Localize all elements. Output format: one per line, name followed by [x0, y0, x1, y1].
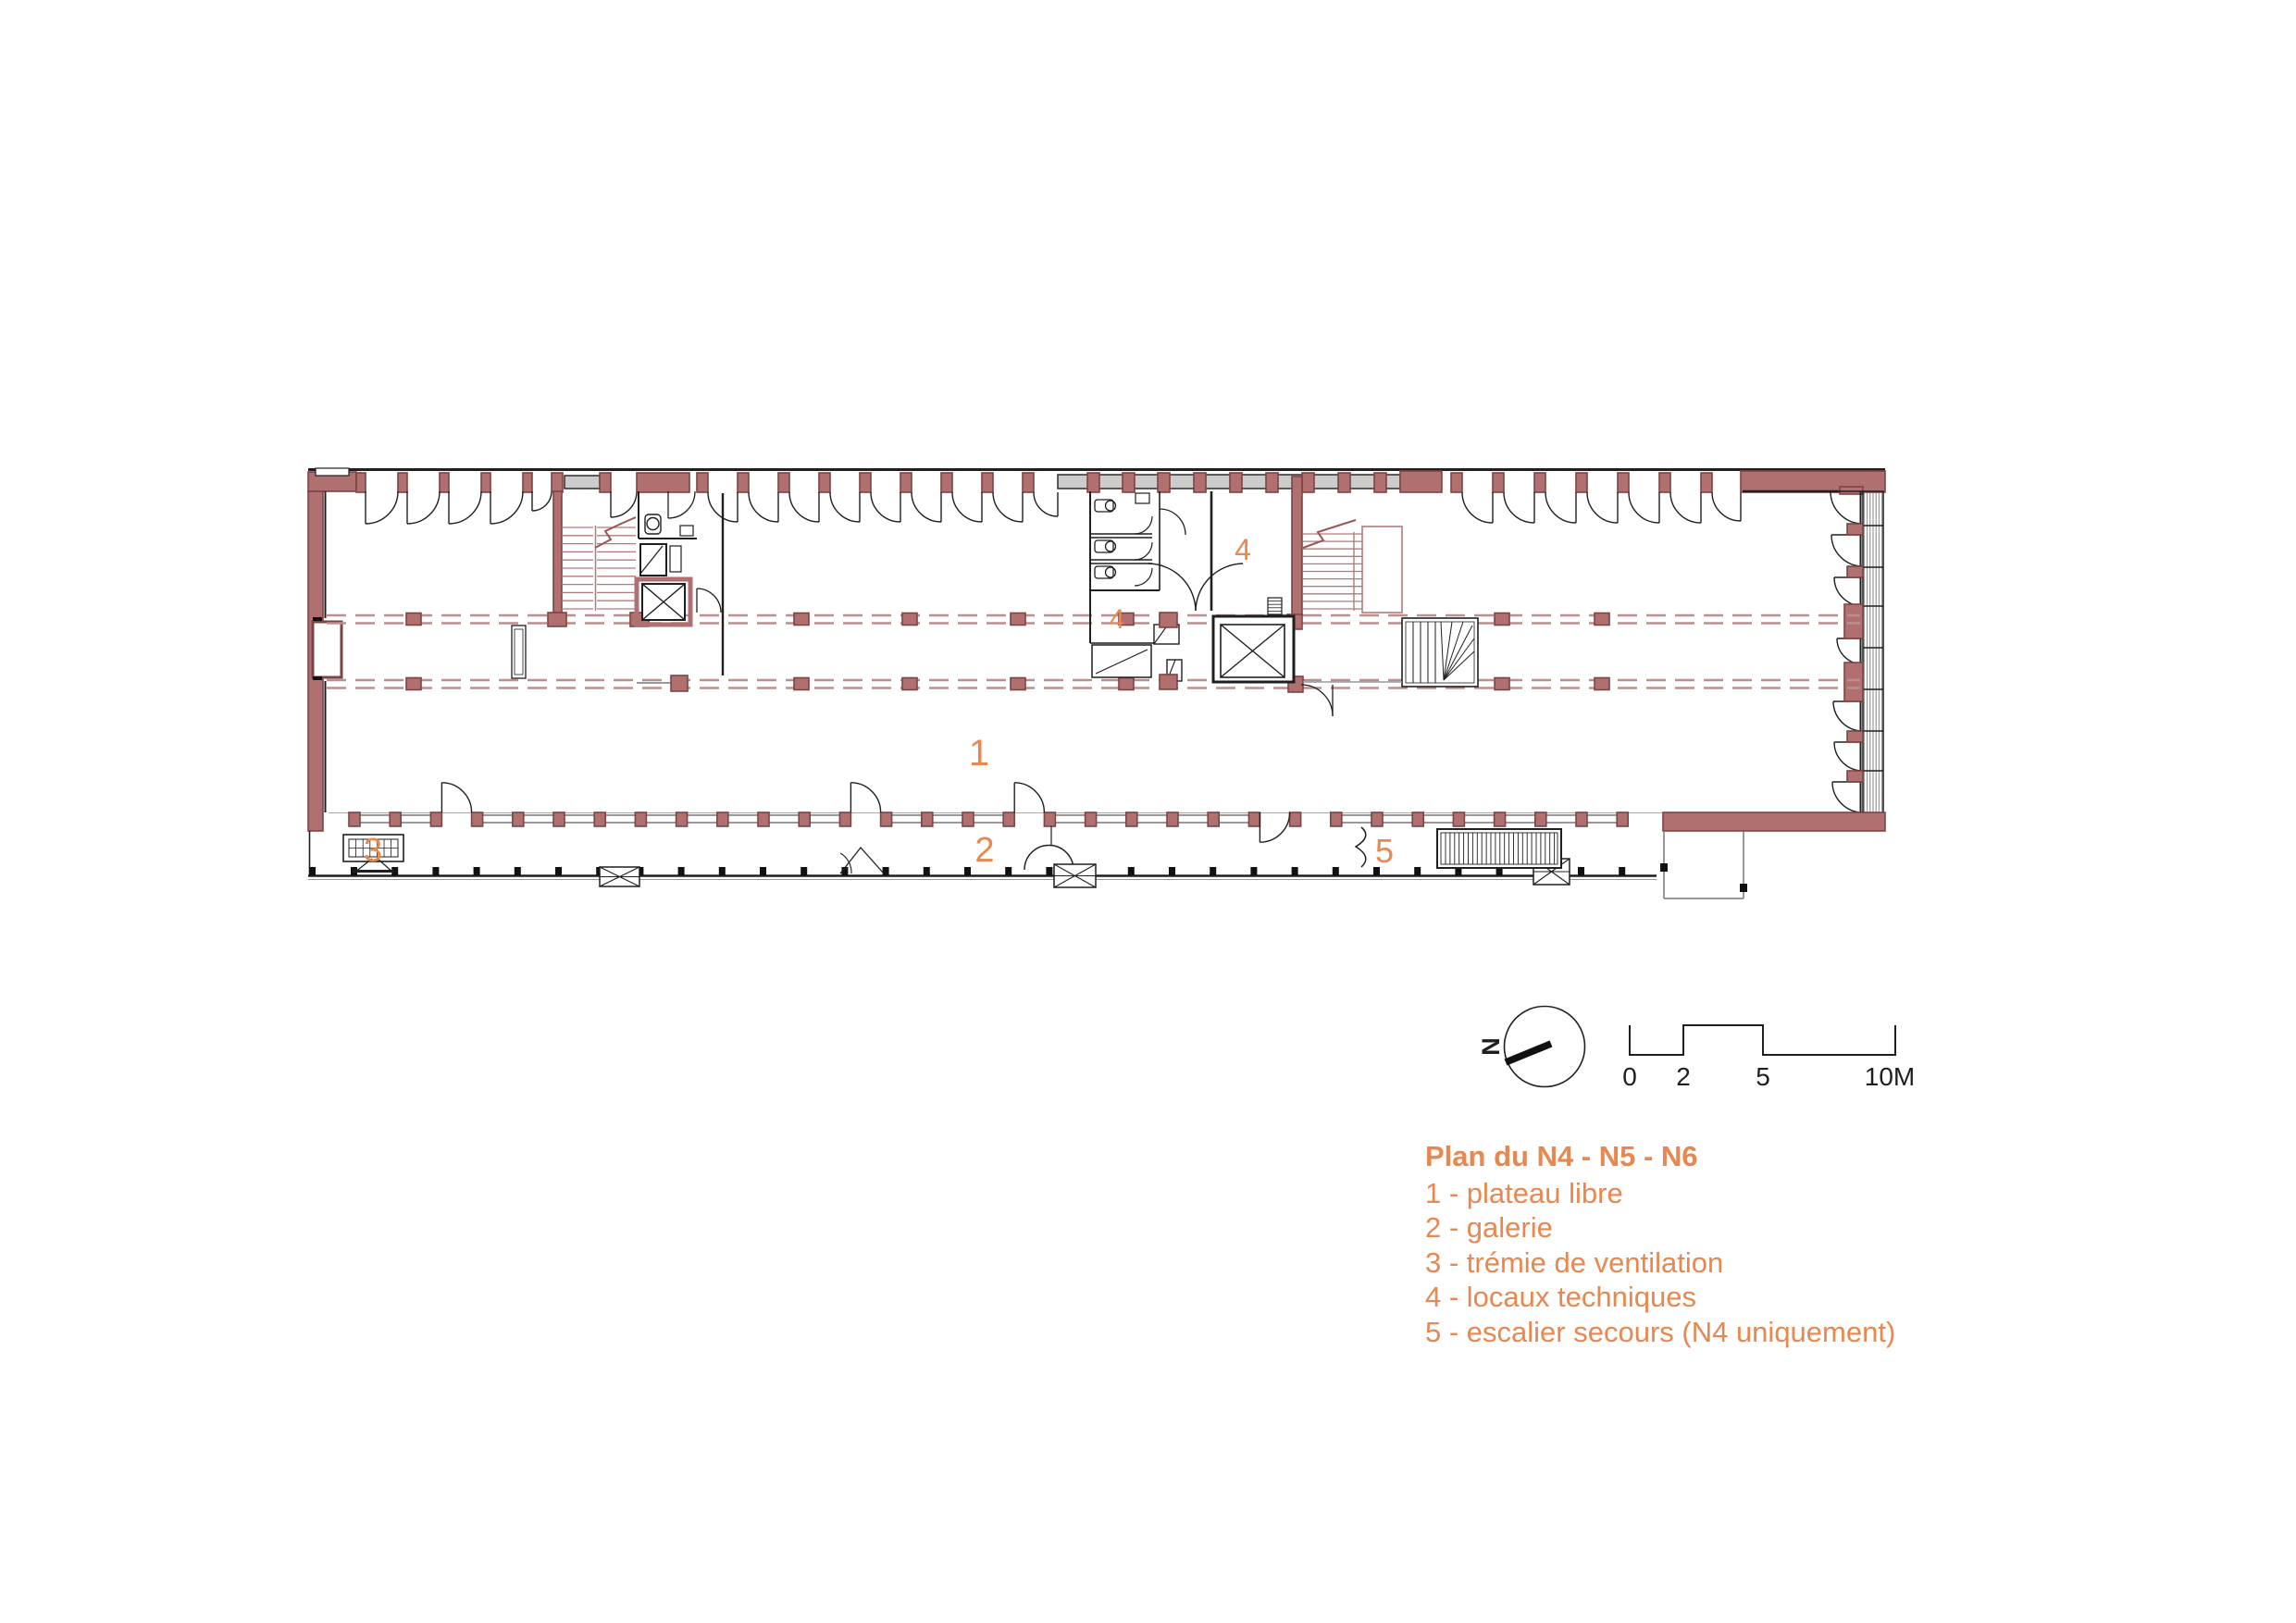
bottom-colonnade — [329, 783, 1885, 870]
area-label-local-technique-b: 4 — [1235, 533, 1251, 566]
scale-bar-shape — [1630, 1025, 1895, 1055]
top-wall — [308, 468, 1885, 524]
scale-tick-0: 0 — [1622, 1062, 1637, 1091]
floor-plan-drawing: 1 2 3 4 4 5 N 0 2 5 10M — [0, 0, 2296, 1623]
legend-item-3: 3 - trémie de ventilation — [1425, 1245, 1895, 1281]
legend-item-5: 5 - escalier secours (N4 uniquement) — [1425, 1315, 1895, 1350]
scale-bar: 0 2 5 10M — [1622, 1025, 1915, 1091]
area-label-galerie: 2 — [974, 831, 994, 870]
legend-item-1: 1 - plateau libre — [1425, 1176, 1895, 1211]
north-arrow-needle — [1506, 1044, 1551, 1062]
scale-tick-10m: 10M — [1865, 1062, 1915, 1091]
legend-item-2: 2 - galerie — [1425, 1210, 1895, 1245]
floor-plan-page: 1 2 3 4 4 5 N 0 2 5 10M Plan du N4 - N5 … — [0, 0, 2296, 1623]
area-label-plateau-libre: 1 — [969, 733, 989, 774]
left-wall — [308, 491, 341, 831]
legend-title: Plan du N4 - N5 - N6 — [1425, 1139, 1895, 1174]
scale-tick-5: 5 — [1756, 1062, 1770, 1091]
area-label-local-technique-a: 4 — [1110, 604, 1125, 635]
scale-tick-2: 2 — [1676, 1062, 1691, 1091]
area-label-tremie: 3 — [364, 831, 382, 869]
west-core-stair-elevator — [512, 491, 723, 691]
north-arrow-label: N — [1477, 1037, 1505, 1056]
north-arrow: N — [1477, 1007, 1585, 1087]
legend-item-4: 4 - locaux techniques — [1425, 1280, 1895, 1315]
right-facade-louvers — [1831, 491, 1883, 817]
emergency-stair — [1437, 829, 1561, 868]
legend: Plan du N4 - N5 - N6 1 - plateau libre 2… — [1425, 1139, 1895, 1349]
area-label-escalier-secours: 5 — [1375, 832, 1394, 870]
